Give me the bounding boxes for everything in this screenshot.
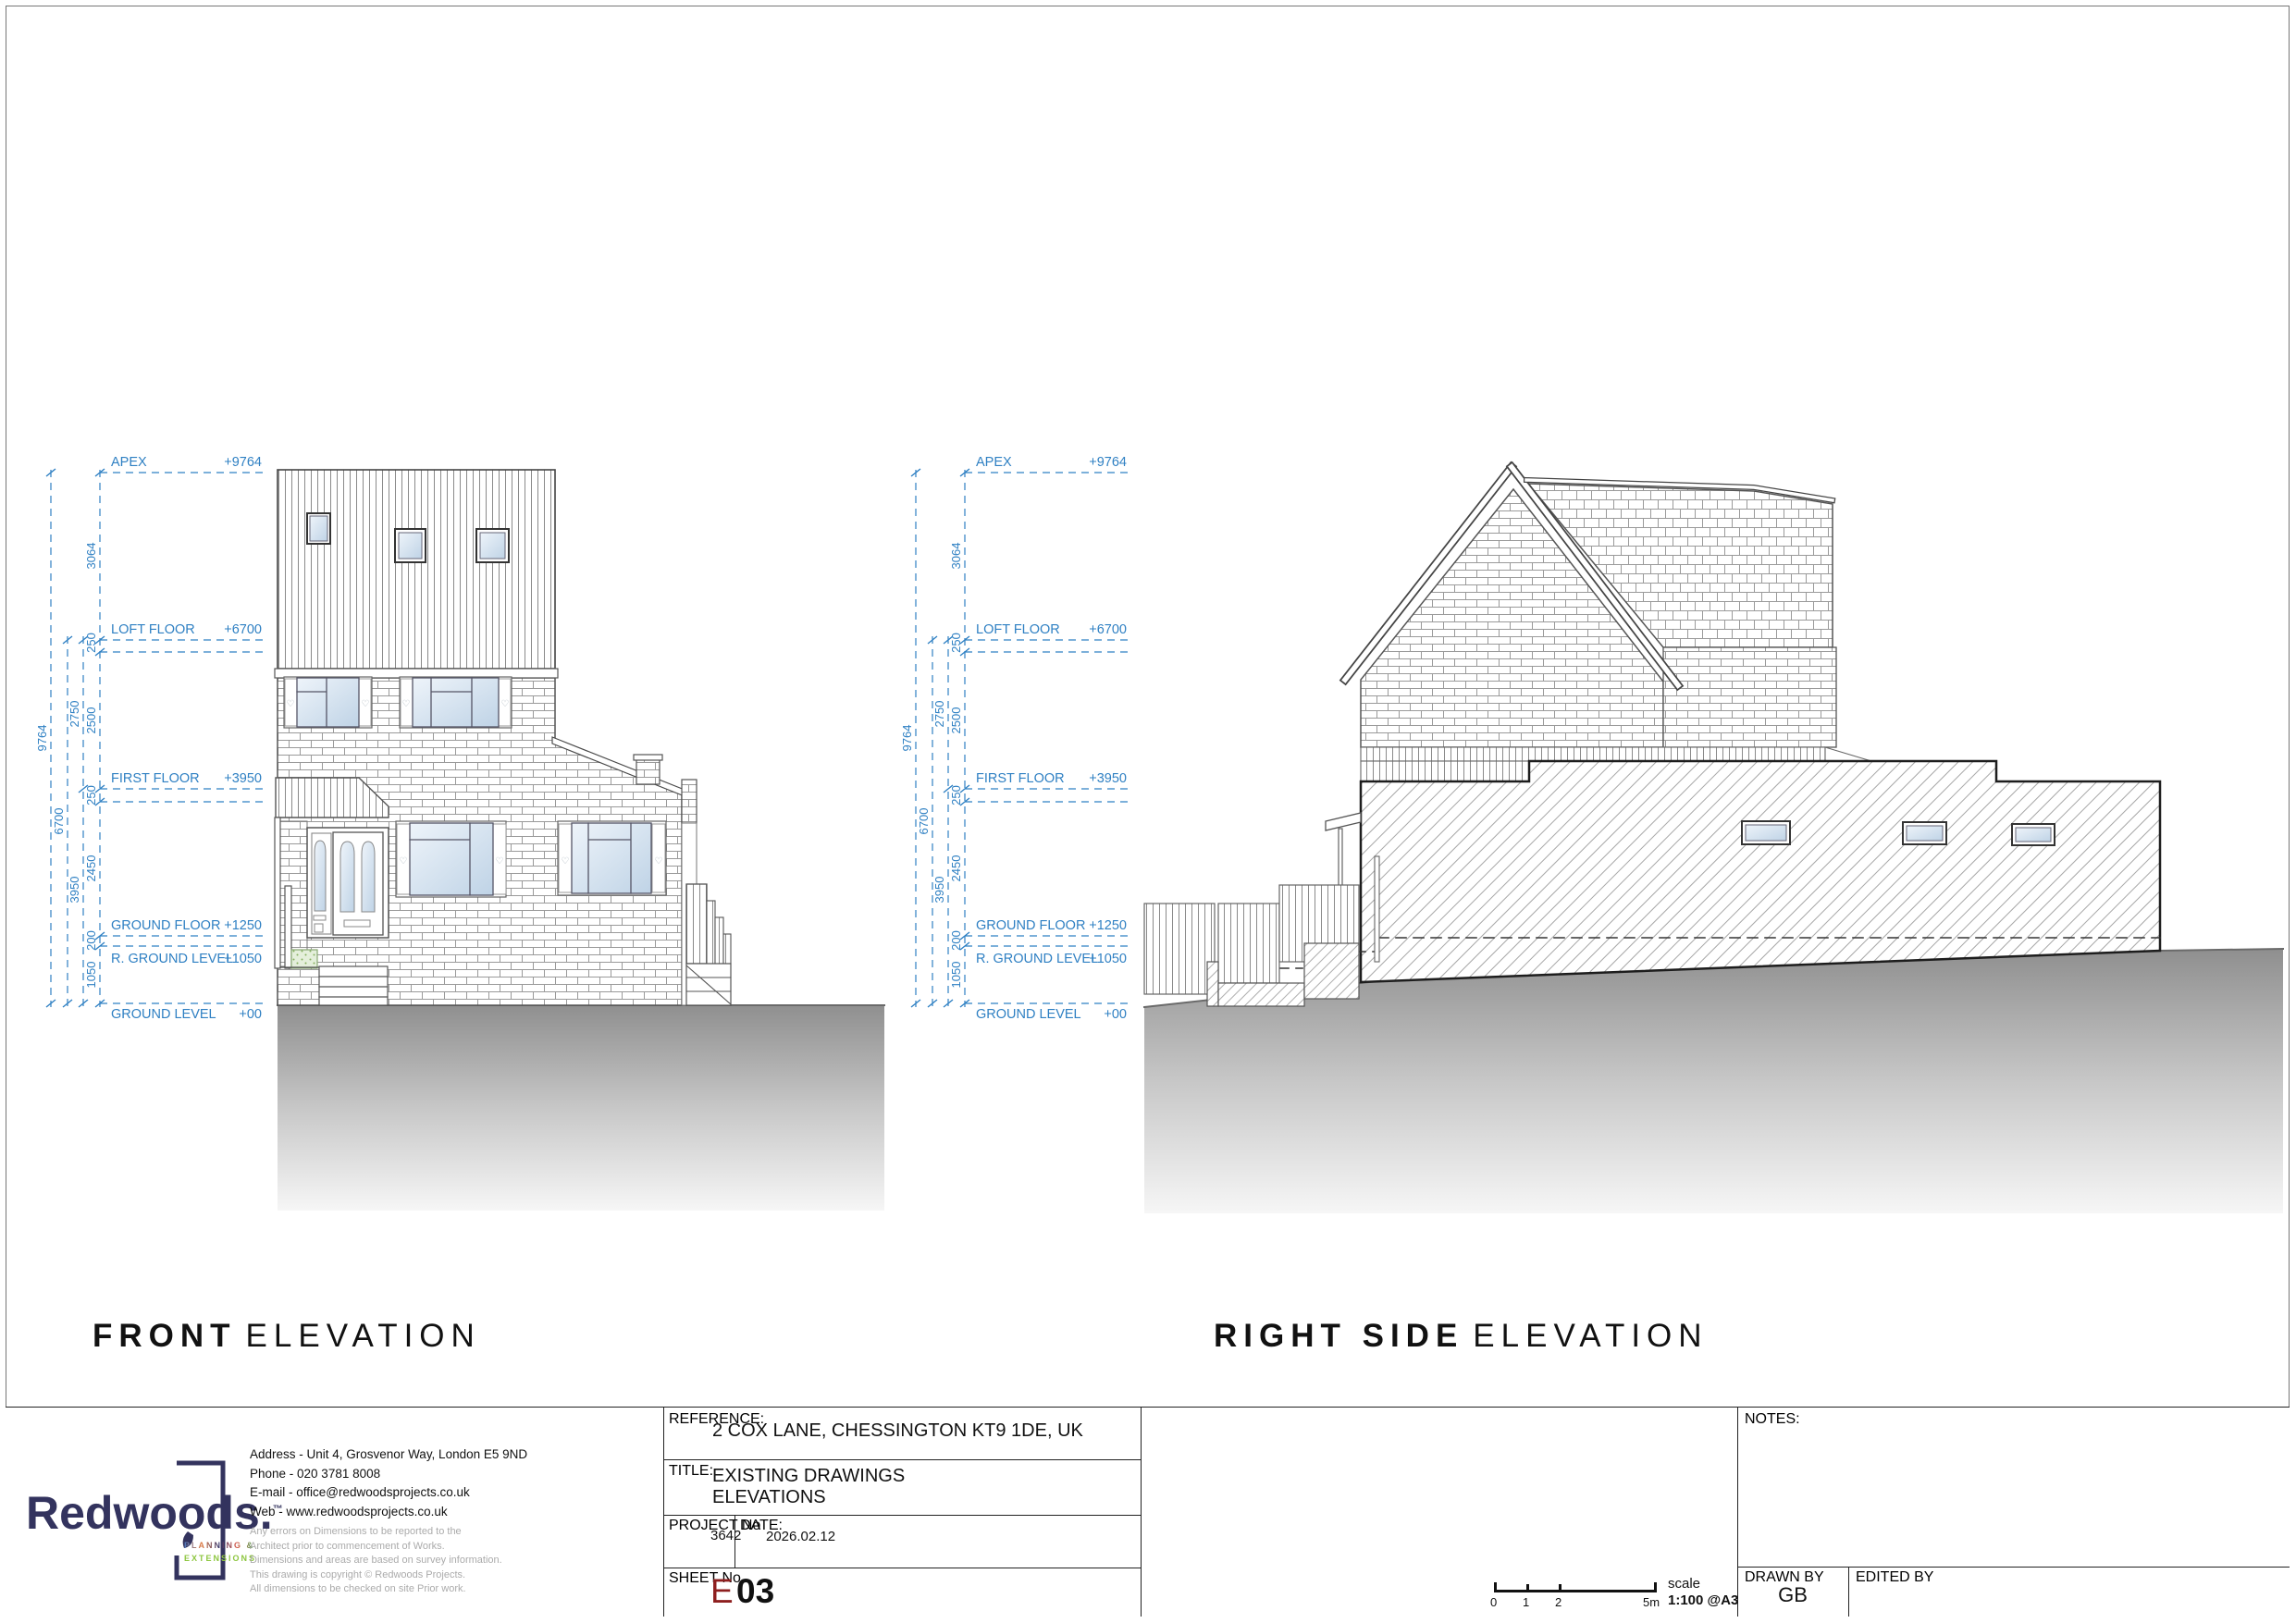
level-value: +1050 [224,952,262,966]
title-block-divider [1737,1567,2290,1568]
ground-floor-window-2: ♡ ♡ [558,821,666,895]
dim-text: 250 [84,633,98,653]
drawing-title-line1: EXISTING DRAWINGS [712,1466,905,1487]
loft-window-2 [395,529,426,562]
loft-window-3 [476,529,509,562]
disclaimer-line: Dimensions and areas are based on survey… [250,1554,502,1568]
shutter-heart-icon: ♡ [402,699,411,709]
elevations-canvas: ♡ ♡ ♡ ♡ ♡ ♡ [0,0,2296,1396]
cladding-band-upper [1361,747,1825,761]
level-value: +3950 [1089,771,1127,786]
disclaimer-line: All dimensions to be checked on site Pri… [250,1582,502,1597]
right-side-elevation-title-strong: RIGHT SIDE [1214,1318,1463,1354]
contact-block: Address - Unit 4, Grosvenor Way, London … [250,1445,527,1521]
scale-tick-label: 1 [1523,1595,1529,1609]
dim-text: 2450 [84,855,98,882]
scale-tick-label: 5m [1643,1595,1660,1609]
front-door [307,828,389,938]
level-label: R. GROUND LEVEL [976,952,1098,966]
contact-address: Address - Unit 4, Grosvenor Way, London … [250,1445,527,1465]
loft-cladding [278,470,555,669]
dim-text: 6700 [917,808,931,835]
logo-tagline-extensions: EXTENSIONS [184,1554,256,1563]
right-side-elevation-dimensions: APEX +9764 LOFT FLOOR +6700 FIRST FLOOR … [900,455,1130,1022]
logo-tagline-planning: PLANNING & [184,1541,254,1550]
chimney [636,759,660,784]
letterbox [344,920,370,927]
flank-brick-wall [1663,647,1836,747]
drawn-by-value: GB [1737,1583,1848,1607]
title-block-divider [663,1459,1141,1460]
parapet-pier [682,780,697,823]
dim-text: 2500 [949,707,963,734]
right-side-elevation-title-light: ELEVATION [1473,1318,1708,1354]
entrance-steps [319,966,388,1005]
shutter-heart-icon: ♡ [501,699,510,709]
level-label: R. GROUND LEVEL [111,952,233,966]
right-side-elevation-title: RIGHT SIDEELEVATION [1214,1318,1709,1355]
front-elevation-dimensions: APEX +9764 LOFT FLOOR +6700 FIRST FLOOR … [35,455,265,1022]
title-label: TITLE: [669,1463,713,1480]
dim-text: 9764 [35,725,49,752]
scale-bar-tick [1654,1582,1657,1592]
front-elevation-title-strong: FRONT [93,1318,237,1354]
dim-text: 2750 [68,701,81,728]
dim-text: 200 [949,930,963,951]
sheet-no-prefix: E [710,1572,734,1611]
right-side-elevation-drawing [1144,467,2283,1213]
level-value: +9764 [224,455,262,470]
level-value: +9764 [1089,455,1127,470]
cladding-band-lower [1361,761,1529,781]
loft-window-1 [307,513,330,544]
dim-text: 1050 [84,962,98,989]
contact-web[interactable]: Web - www.redwoodsprojects.co.uk [250,1503,527,1522]
edited-by-label: EDITED BY [1856,1569,1933,1586]
shutter-heart-icon: ♡ [287,699,295,709]
scale-label: scale [1668,1576,1700,1592]
drawing-sheet: ♡ ♡ ♡ ♡ ♡ ♡ [0,0,2296,1623]
dim-text: 6700 [52,808,66,835]
reference-value: 2 COX LANE, CHESSINGTON KT9 1DE, UK [712,1420,1083,1442]
level-label: GROUND FLOOR [111,918,220,933]
dim-text: 3064 [84,543,98,570]
disclaimer-line: Architect prior to commencement of Works… [250,1540,502,1555]
title-block-divider [663,1408,664,1617]
extension-side-wall [1361,761,2160,982]
chimney-cap [634,755,662,760]
front-elevation-drawing: ♡ ♡ ♡ ♡ ♡ ♡ [275,470,884,1211]
first-floor-window-2: ♡ ♡ [400,677,512,728]
notes-label: NOTES: [1745,1411,1800,1428]
level-label: GROUND LEVEL [111,1007,216,1022]
dim-text: 250 [84,785,98,805]
contact-phone: Phone - 020 3781 8008 [250,1465,527,1484]
scale-bar-tick [1559,1584,1562,1592]
planter [291,950,317,968]
title-block-divider [1141,1408,1142,1617]
front-elevation-title: FRONTELEVATION [93,1318,481,1355]
level-label: GROUND LEVEL [976,1007,1081,1022]
gate-post [285,886,291,968]
sheet-no-value: 03 [736,1572,774,1611]
shutter-heart-icon: ♡ [562,856,570,867]
level-value: +1250 [1089,918,1127,933]
level-label: FIRST FLOOR [111,771,200,786]
front-ground-shading [278,1005,884,1211]
side-stairs-fence [686,884,731,1005]
level-value: +00 [239,1007,262,1022]
dim-text: 2500 [84,707,98,734]
shutter-heart-icon: ♡ [496,856,504,867]
level-label: APEX [976,455,1012,470]
porch-post [275,818,280,968]
level-value: +00 [1104,1007,1127,1022]
level-label: APEX [111,455,147,470]
level-label: GROUND FLOOR [976,918,1085,933]
disclaimer-block: Any errors on Dimensions to be reported … [250,1525,502,1597]
drawing-title-line2: ELEVATIONS [712,1487,826,1508]
date-value: 2026.02.12 [766,1529,835,1544]
level-value: +1050 [1089,952,1127,966]
cladding-slope-piece [1825,747,1871,761]
dim-text: 3064 [949,543,963,570]
side-wall-window-1 [1742,821,1790,844]
level-value: +6700 [224,622,262,637]
dim-text: 2750 [932,701,946,728]
level-label: LOFT FLOOR [111,622,195,637]
dim-text: 2450 [949,855,963,882]
level-value: +3950 [224,771,262,786]
level-label: FIRST FLOOR [976,771,1065,786]
shutter-heart-icon: ♡ [400,856,408,867]
dim-text: 200 [84,930,98,951]
dim-text: 3950 [932,877,946,904]
title-block-divider [1848,1567,1849,1617]
scale-bar-tick [1494,1582,1497,1592]
scale-bar [1495,1590,1657,1592]
shutter-heart-icon: ♡ [362,699,370,709]
level-value: +1250 [224,918,262,933]
side-wall-window-3 [2012,824,2055,845]
dim-text: 1050 [949,962,963,989]
dim-text: 9764 [900,725,914,752]
first-floor-window-1: ♡ ♡ [284,677,372,728]
scale-value: 1:100 @A3 [1668,1592,1738,1608]
logo-house-icon [169,1459,257,1581]
front-elevation-title-light: ELEVATION [246,1318,481,1354]
project-no-value: 3642 [710,1528,741,1543]
scale-tick-label: 2 [1555,1595,1562,1609]
level-value: +6700 [1089,622,1127,637]
disclaimer-line: Any errors on Dimensions to be reported … [250,1525,502,1540]
dim-text: 3950 [68,877,81,904]
scale-tick-label: 0 [1490,1595,1497,1609]
scale-bar-tick [1526,1584,1529,1592]
level-label: LOFT FLOOR [976,622,1060,637]
dim-text: 250 [949,785,963,805]
side-wall-window-2 [1903,822,1946,844]
downpipe [1375,856,1379,962]
title-block-divider [663,1568,1141,1568]
disclaimer-line: This drawing is copyright © Redwoods Pro… [250,1568,502,1583]
dim-text: 250 [949,633,963,653]
ground-floor-window-1: ♡ ♡ [396,821,506,897]
contact-email[interactable]: E-mail - office@redwoodsprojects.co.uk [250,1483,527,1503]
shutter-heart-icon: ♡ [655,856,663,867]
